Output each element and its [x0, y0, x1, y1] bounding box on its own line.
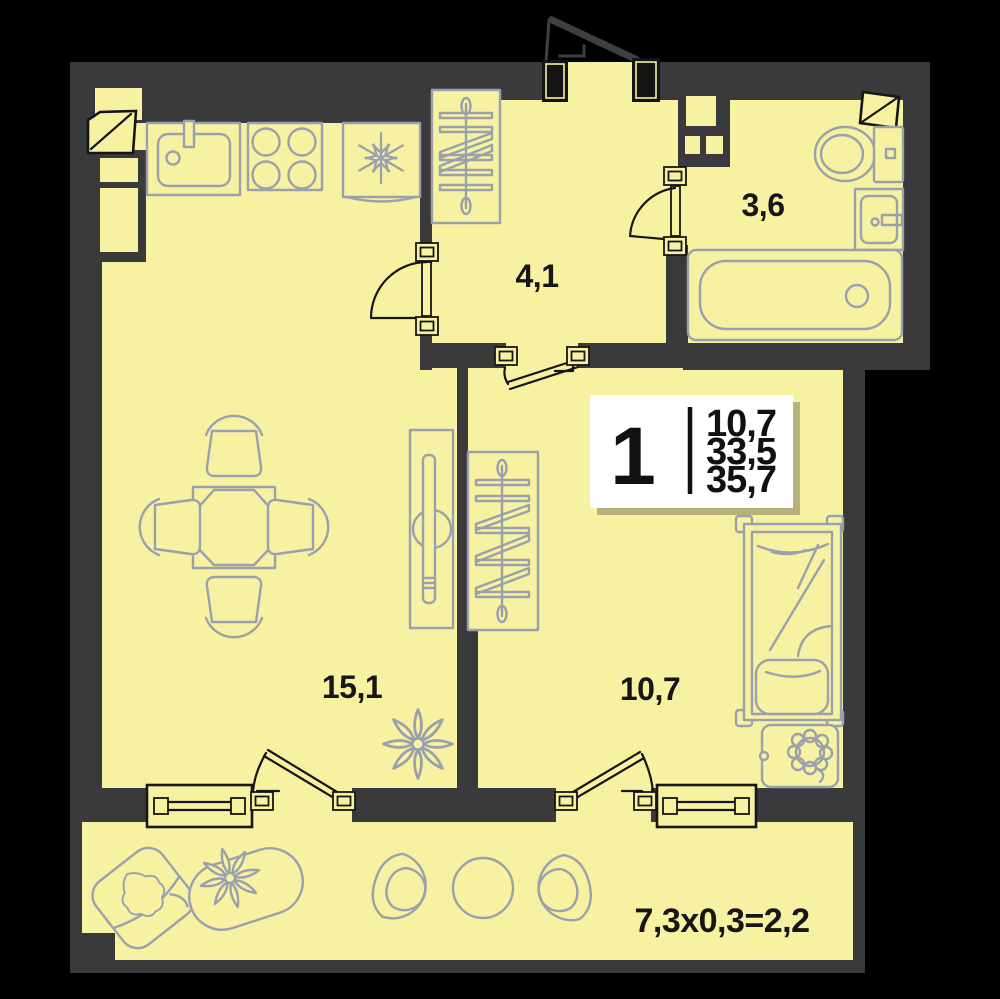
wall-segment	[683, 343, 930, 370]
bathroom-area-label: 3,6	[742, 187, 785, 223]
wall-segment	[420, 343, 506, 368]
legend-value-3: 35,7	[706, 459, 776, 501]
wall-segment	[843, 368, 865, 822]
wall-segment	[666, 245, 688, 343]
wall-segment	[457, 368, 468, 630]
floor-plan-page: 3,6 4,1 15,1 10,7 7,3x0,3=2,2 1 10,7 33,…	[0, 0, 1000, 999]
kitchen-icons	[147, 121, 420, 202]
bed-icon	[736, 516, 843, 726]
vent-cell	[685, 136, 700, 154]
wall-segment	[102, 100, 420, 123]
legend-card: 1 10,7 33,5 35,7	[590, 395, 800, 515]
vent-cell	[686, 96, 716, 126]
bedroom-wardrobe-icon	[468, 452, 538, 630]
door-hinge	[416, 317, 438, 335]
door-hinge	[416, 243, 438, 261]
door-leaf	[671, 186, 680, 236]
floor-plan: 3,6 4,1 15,1 10,7 7,3x0,3=2,2 1 10,7 33,…	[0, 0, 1000, 999]
left-wall-window	[88, 88, 142, 153]
hall-wardrobe-icon	[432, 90, 500, 223]
tall-cabinet-icon	[410, 430, 453, 628]
door-hinge	[664, 237, 686, 255]
wall-segment	[903, 62, 930, 370]
wall-segment	[70, 788, 147, 822]
wall-segment	[70, 933, 115, 973]
wall-segment	[853, 822, 865, 973]
wall-segment	[352, 788, 556, 822]
door-hinge	[333, 792, 355, 810]
door-hinge	[664, 167, 686, 185]
wall-segment	[70, 960, 865, 973]
door-hinge	[634, 792, 656, 810]
wall-segment	[420, 100, 432, 250]
vent-cell	[706, 136, 723, 154]
living-window	[147, 785, 252, 827]
flower-icon	[384, 710, 453, 779]
left-shaft-cell	[100, 158, 138, 182]
bedroom-window	[657, 785, 756, 827]
pillow-icon	[756, 660, 828, 714]
legend-rooms-count: 1	[610, 411, 656, 502]
toilet-tank-icon	[874, 127, 903, 182]
door-hinge	[555, 792, 577, 810]
faucet-icon	[184, 121, 194, 147]
wall-segment	[457, 628, 478, 788]
balcony-table-icon	[453, 858, 513, 918]
door-hinge	[251, 792, 273, 810]
bathtub-icon	[688, 250, 902, 340]
door-hinge	[567, 347, 589, 365]
hallway-area-label: 4,1	[516, 258, 559, 294]
plant-pot-icon	[760, 725, 838, 787]
wall-segment	[756, 788, 865, 822]
door-hinge	[495, 347, 517, 365]
door-leaf	[422, 262, 431, 316]
balcony-formula-label: 7,3x0,3=2,2	[634, 902, 809, 940]
bedroom-area-label: 10,7	[620, 671, 680, 707]
living-area-label: 15,1	[322, 669, 382, 705]
left-shaft-cell	[100, 188, 138, 252]
